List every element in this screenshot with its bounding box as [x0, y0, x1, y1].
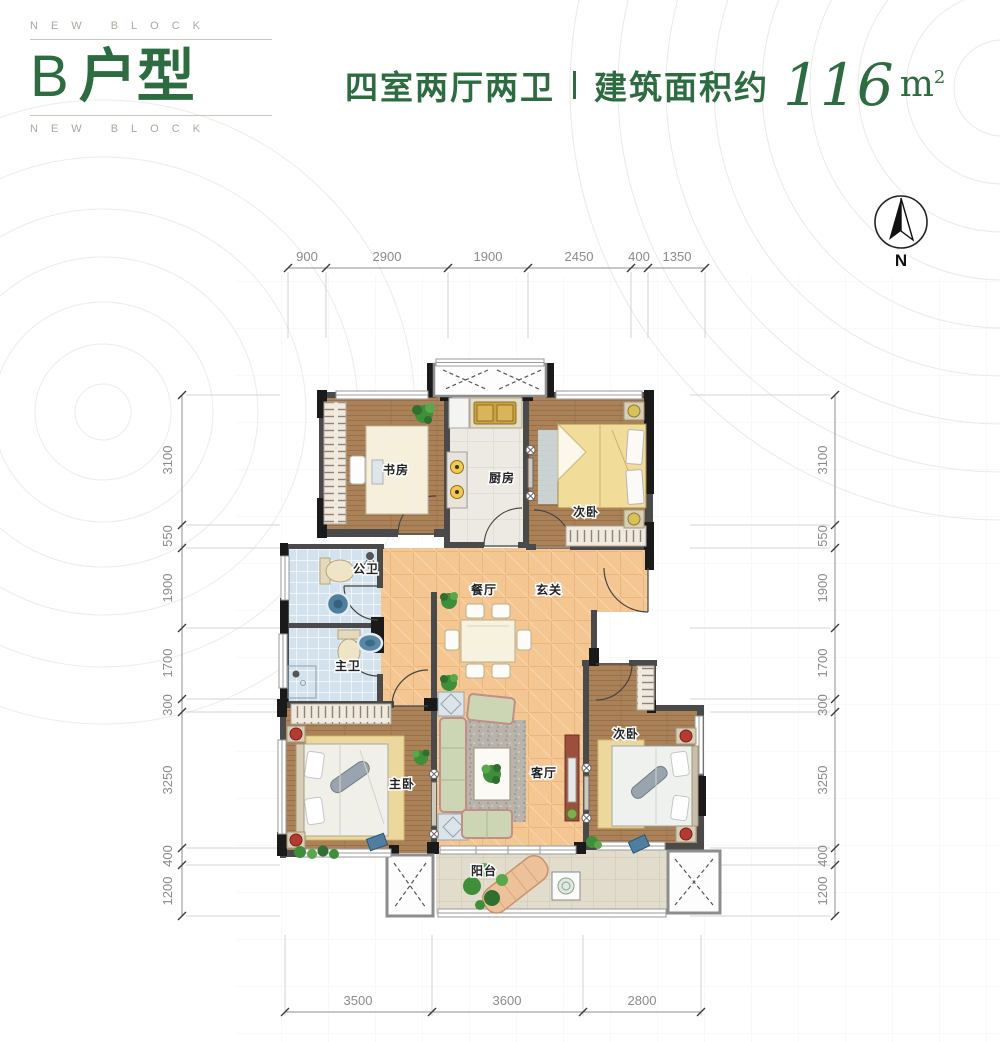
dim-value: 400 [160, 845, 175, 867]
dim-value: 300 [160, 694, 175, 716]
dim-value: 2450 [565, 249, 594, 264]
room-label-master-bedroom: 主卧 [389, 776, 415, 791]
pillow [304, 751, 324, 779]
brand-eyebrow-bottom: NEW BLOCK [30, 123, 272, 135]
window [556, 391, 642, 399]
area-label: 建筑面积约 [594, 61, 769, 109]
title-divider [573, 71, 576, 99]
dim-value: 400 [628, 249, 650, 264]
dim-value: 3100 [815, 446, 830, 475]
window [279, 634, 287, 688]
room-label-bedroom-top: 次卧 [573, 504, 599, 519]
toilet [326, 560, 354, 582]
chair [466, 604, 484, 618]
room-label-kitchen: 厨房 [489, 470, 515, 485]
compass: N [875, 196, 927, 270]
sofa [440, 718, 466, 812]
dim-value: 1700 [815, 649, 830, 678]
brand-rule-top [30, 39, 272, 40]
page-title: B户型 [30, 47, 272, 108]
wardrobe [566, 526, 646, 546]
unit-letter: B [30, 44, 69, 109]
pot-plant [567, 809, 577, 819]
dim-value: 1200 [815, 877, 830, 906]
dim-value: 400 [815, 845, 830, 867]
dim-value: 3500 [344, 993, 373, 1008]
chair [445, 630, 459, 650]
dim-value: 3250 [160, 766, 175, 795]
room-label-living: 客厅 [530, 765, 557, 780]
lamp [628, 513, 640, 525]
dim-value: 3250 [815, 766, 830, 795]
dims-left: 3100 550 1900 1700 300 3250 400 1200 [160, 446, 175, 906]
dim-value: 1900 [815, 574, 830, 603]
room-label-dining: 餐厅 [471, 582, 497, 597]
dim-value: 2900 [373, 249, 402, 264]
pillow [626, 469, 644, 504]
brand-rule-bottom [30, 115, 272, 116]
room-label-balcony: 阳台 [471, 863, 497, 878]
lamp [628, 405, 640, 417]
room-label-study: 书房 [383, 462, 409, 477]
wardrobe [637, 666, 654, 710]
brand-eyebrow-top: NEW BLOCK [30, 20, 272, 32]
page: 900 2900 1900 2450 400 1350 3500 3600 28… [0, 0, 1000, 1042]
unit-summary: 四室两厅两卫 建筑面积约 116 m2 [345, 56, 945, 114]
chair [517, 630, 531, 650]
dim-value: 1700 [160, 649, 175, 678]
dim-value: 1350 [663, 249, 692, 264]
bookshelf [324, 402, 346, 524]
toilet-tank [338, 630, 360, 639]
dim-value: 550 [160, 525, 175, 547]
compass-north-label: N [895, 251, 907, 270]
ac-shaft-left [387, 855, 433, 916]
side-table [438, 692, 464, 716]
layout-text: 四室两厅两卫 [345, 61, 555, 109]
unit-suffix: 户型 [79, 44, 195, 109]
window [281, 556, 289, 600]
dims-top: 900 2900 1900 2450 400 1350 [296, 249, 691, 264]
chair [492, 604, 510, 618]
dim-value: 1900 [474, 249, 503, 264]
window [278, 740, 286, 834]
ac-shaft-right [668, 851, 720, 913]
washing-machine [552, 872, 580, 900]
window [438, 909, 666, 917]
floor-plan-canvas: 900 2900 1900 2450 400 1350 3500 3600 28… [0, 0, 1000, 1042]
dim-value: 1200 [160, 877, 175, 906]
dim-value: 2800 [628, 993, 657, 1008]
room-label-public-bath: 公卫 [353, 562, 379, 576]
pillow [626, 429, 644, 464]
dim-value: 300 [815, 694, 830, 716]
room-label-foyer: 玄关 [536, 582, 562, 597]
wardrobe [291, 704, 391, 724]
chair [466, 664, 484, 678]
brand-block: NEW BLOCK B户型 NEW BLOCK [30, 20, 272, 135]
chair [492, 664, 510, 678]
area-unit: m2 [900, 67, 946, 103]
window [336, 391, 428, 399]
area-value: 116 [783, 56, 894, 114]
dim-value: 3600 [493, 993, 522, 1008]
lamp [290, 728, 302, 740]
balcony-slider-window [440, 846, 576, 854]
lamp [680, 730, 692, 742]
dim-value: 550 [815, 525, 830, 547]
lamp [680, 828, 692, 840]
pillow [670, 795, 689, 821]
lamp [290, 834, 302, 846]
room-label-bedroom-right: 次卧 [613, 726, 639, 741]
dim-value: 1900 [160, 574, 175, 603]
dim-value: 3100 [160, 446, 175, 475]
loveseat [467, 694, 515, 725]
headboard [296, 744, 304, 836]
desk-chair [350, 456, 365, 484]
pillow [304, 797, 324, 825]
ac-shaft-top [434, 364, 546, 396]
room-label-master-bath: 主卫 [335, 658, 361, 673]
headboard [692, 746, 698, 826]
pillow [670, 751, 689, 777]
window [436, 359, 544, 366]
fridge [449, 398, 469, 428]
tv [568, 758, 576, 802]
monitor [372, 460, 383, 484]
dim-value: 900 [296, 249, 318, 264]
